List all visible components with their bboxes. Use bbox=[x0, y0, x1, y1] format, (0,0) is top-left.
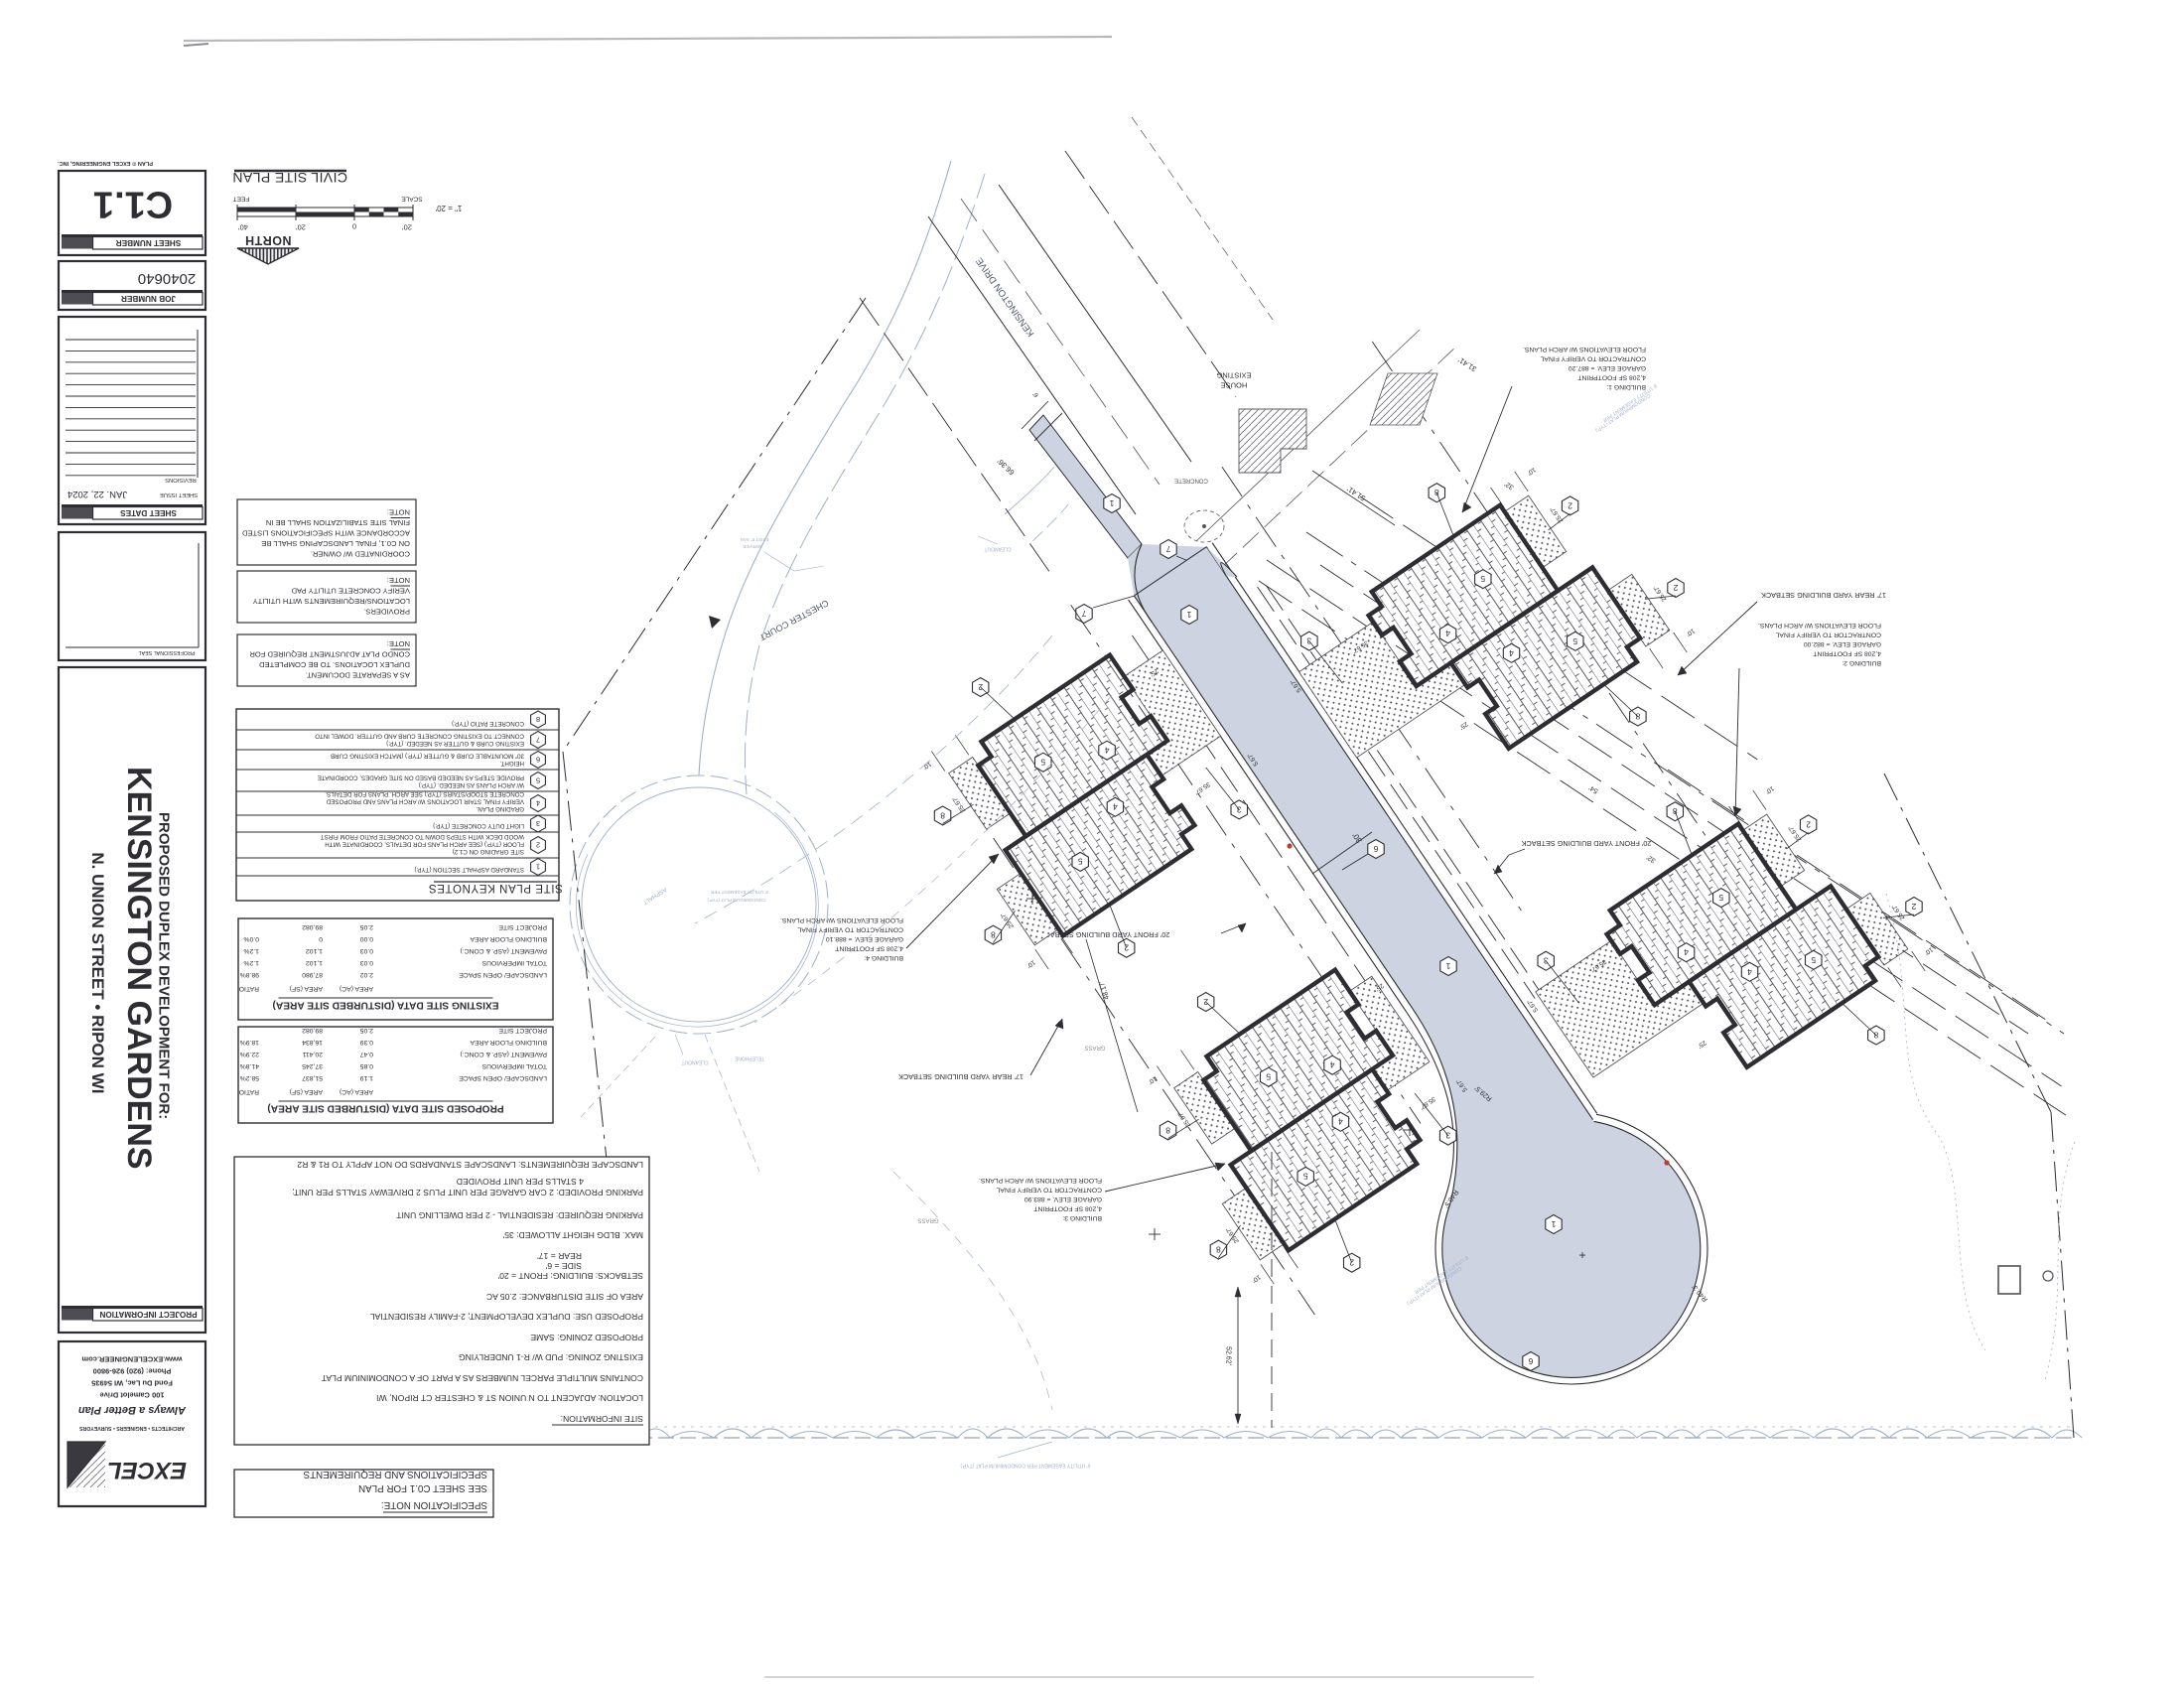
svg-text:GARAGE ELEV. = 882.00: GARAGE ELEV. = 882.00 bbox=[1804, 640, 1881, 647]
svg-text:89,082: 89,082 bbox=[302, 923, 323, 930]
svg-text:AS A SEPARATE DOCUMENT.: AS A SEPARATE DOCUMENT. bbox=[306, 671, 410, 680]
svg-text:20' FRONT YARD BUILDING SETBAC: 20' FRONT YARD BUILDING SETBACK bbox=[1522, 839, 1652, 848]
svg-text:PARKING REQUIRED: RESIDENTIAL: PARKING REQUIRED: RESIDENTIAL - 2 PER DW… bbox=[395, 1210, 643, 1220]
svg-text:PLAN © EXCEL ENGINEERING, INC.: PLAN © EXCEL ENGINEERING, INC. bbox=[58, 160, 153, 167]
svg-text:REVISIONS: REVISIONS bbox=[165, 477, 197, 483]
svg-text:2.02: 2.02 bbox=[360, 971, 373, 978]
svg-text:BUILDING 4:: BUILDING 4: bbox=[864, 954, 903, 961]
svg-text:5: 5 bbox=[1718, 893, 1723, 903]
svg-text:6: 6 bbox=[1373, 844, 1378, 854]
svg-text:0.47: 0.47 bbox=[360, 1051, 373, 1057]
svg-text:8: 8 bbox=[991, 929, 996, 939]
svg-text:22.9%: 22.9% bbox=[240, 1051, 259, 1057]
svg-text:1: 1 bbox=[1445, 961, 1450, 971]
svg-text:4 STALLS PER UNIT PROVIDED: 4 STALLS PER UNIT PROVIDED bbox=[457, 1177, 584, 1187]
svg-text:AREA (AC): AREA (AC) bbox=[340, 1088, 373, 1095]
svg-text:CONTRACTOR TO VERIFY FINAL: CONTRACTOR TO VERIFY FINAL bbox=[1775, 632, 1881, 638]
svg-text:4,208 SF FOOTPRINT: 4,208 SF FOOTPRINT bbox=[1577, 374, 1646, 381]
svg-text:4,208 SF FOOTPRINT: 4,208 SF FOOTPRINT bbox=[1033, 1205, 1102, 1212]
svg-text:30" MOUNTABLE CURB & GUTTER (T: 30" MOUNTABLE CURB & GUTTER (TYP.) (MATC… bbox=[331, 753, 524, 760]
svg-text:BUILDING FLOOR AREA: BUILDING FLOOR AREA bbox=[470, 1039, 547, 1046]
svg-text:VERIFY CONCRETE UTILITY PAD: VERIFY CONCRETE UTILITY PAD bbox=[291, 587, 410, 596]
svg-text:Always a Better Plan: Always a Better Plan bbox=[78, 1404, 187, 1416]
svg-text:100 Camelot Drive: 100 Camelot Drive bbox=[99, 1391, 164, 1400]
svg-text:SERVICE: SERVICE bbox=[743, 544, 762, 549]
svg-text:CONDOMINIUM PLAT (TYP.): CONDOMINIUM PLAT (TYP.) bbox=[707, 898, 766, 903]
svg-text:AREA (AC): AREA (AC) bbox=[340, 985, 373, 992]
svg-text:FLOOR ELEVATIONS W/ ARCH PLANS: FLOOR ELEVATIONS W/ ARCH PLANS. bbox=[1758, 622, 1881, 629]
svg-text:JAN. 22, 2024: JAN. 22, 2024 bbox=[68, 489, 127, 499]
svg-text:0.03: 0.03 bbox=[360, 947, 373, 954]
svg-text:COORDINATED W/ OWNER.: COORDINATED W/ OWNER. bbox=[311, 550, 410, 559]
svg-text:W/ ARCH PLANS AS NEEDED. (TYP.: W/ ARCH PLANS AS NEEDED. (TYP.) bbox=[419, 781, 524, 788]
svg-text:FLOOR ELEVATIONS W/ ARCH PLANS: FLOOR ELEVATIONS W/ ARCH PLANS. bbox=[979, 1177, 1102, 1184]
svg-text:0: 0 bbox=[319, 935, 323, 942]
svg-text:FEET: FEET bbox=[233, 195, 250, 202]
svg-text:PROJECT SITE: PROJECT SITE bbox=[498, 923, 547, 930]
svg-text:0.85: 0.85 bbox=[360, 1062, 373, 1069]
svg-text:18.9%: 18.9% bbox=[240, 1039, 259, 1046]
svg-text:17' REAR YARD BUILDING SETBACK: 17' REAR YARD BUILDING SETBACK bbox=[898, 1072, 1024, 1081]
svg-text:CLEANOUT: CLEANOUT bbox=[984, 545, 1011, 551]
svg-text:1.19: 1.19 bbox=[360, 1074, 373, 1081]
svg-text:1: 1 bbox=[1551, 1219, 1556, 1229]
svg-text:16,834: 16,834 bbox=[302, 1039, 323, 1046]
svg-text:4: 4 bbox=[1445, 629, 1450, 638]
svg-text:PARKING PROVIDED: 2 CAR GARAGE: PARKING PROVIDED: 2 CAR GARAGE PER UNIT … bbox=[292, 1188, 643, 1197]
svg-text:EXISTING: EXISTING bbox=[1216, 371, 1251, 380]
svg-text:FLOOR ELEVATIONS W/ ARCH PLANS: FLOOR ELEVATIONS W/ ARCH PLANS. bbox=[780, 916, 903, 923]
svg-text:CONNECT TO EXISTING CONCRETE C: CONNECT TO EXISTING CONCRETE CURB AND GU… bbox=[315, 733, 524, 740]
svg-text:4: 4 bbox=[1104, 745, 1109, 755]
svg-text:CONTRACTOR TO VERIFY FINAL: CONTRACTOR TO VERIFY FINAL bbox=[1540, 355, 1646, 362]
svg-text:5: 5 bbox=[1040, 757, 1045, 767]
svg-text:N. UNION STREET • RIPON WI: N. UNION STREET • RIPON WI bbox=[88, 852, 107, 1093]
svg-text:8: 8 bbox=[940, 810, 945, 820]
svg-text:HOUSE: HOUSE bbox=[1221, 381, 1248, 390]
svg-text:DUPLEX LOCATIONS. TO BE COMPL: DUPLEX LOCATIONS. TO BE COMPLETED bbox=[259, 660, 410, 669]
svg-text:17' REAR YARD BUILDING SETBACK: 17' REAR YARD BUILDING SETBACK bbox=[1761, 591, 1886, 600]
svg-text:1,102: 1,102 bbox=[306, 959, 323, 966]
svg-text:CONCRETE STOOP/STAIRS (TYP.) S: CONCRETE STOOP/STAIRS (TYP.) SEE ARCH. P… bbox=[325, 790, 524, 797]
svg-text:4: 4 bbox=[536, 799, 540, 808]
svg-text:PROPOSED USE: DUPLEX DEVELOPME: PROPOSED USE: DUPLEX DEVELOPMENT; 2-FAMI… bbox=[370, 1312, 643, 1322]
svg-text:Fond Du Lac, WI 54935: Fond Du Lac, WI 54935 bbox=[91, 1379, 173, 1388]
svg-text:37,245: 37,245 bbox=[302, 1062, 323, 1069]
svg-text:PAVEMENT (ASP. & CONC.): PAVEMENT (ASP. & CONC.) bbox=[461, 947, 548, 954]
svg-text:87,980: 87,980 bbox=[302, 971, 323, 978]
svg-text:0: 0 bbox=[352, 222, 356, 231]
svg-text:4: 4 bbox=[1113, 802, 1118, 812]
svg-text:4,208 SF FOOTPRINT: 4,208 SF FOOTPRINT bbox=[835, 945, 903, 952]
svg-text:SCALE: SCALE bbox=[401, 195, 423, 202]
svg-text:5: 5 bbox=[1078, 857, 1083, 867]
svg-text:8: 8 bbox=[1165, 1125, 1170, 1135]
svg-text:FLOOR ELEVATIONS W/ ARCH PLANS: FLOOR ELEVATIONS W/ ARCH PLANS. bbox=[1523, 346, 1646, 352]
svg-text:LANDSCAPE/ OPEN SPACE: LANDSCAPE/ OPEN SPACE bbox=[459, 971, 547, 978]
svg-text:BUILDING 2:: BUILDING 2: bbox=[1842, 659, 1881, 666]
svg-text:2: 2 bbox=[978, 682, 983, 692]
svg-text:7: 7 bbox=[1081, 609, 1086, 619]
svg-text:PROVIDERS.: PROVIDERS. bbox=[363, 608, 410, 617]
svg-text:52.62': 52.62' bbox=[1225, 1346, 1232, 1365]
svg-text:5: 5 bbox=[1266, 1072, 1271, 1082]
svg-text:EXISTING CURB & GUTTER AS NEED: EXISTING CURB & GUTTER AS NEEDED. (TYP.) bbox=[386, 740, 524, 747]
svg-text:0.03: 0.03 bbox=[360, 959, 373, 966]
svg-text:20,411: 20,411 bbox=[302, 1051, 323, 1057]
svg-text:TOTAL IMPERVIOUS: TOTAL IMPERVIOUS bbox=[481, 1062, 547, 1069]
svg-text:NOTE:: NOTE: bbox=[387, 508, 410, 517]
svg-text:GARAGE ELEV. = 887.20: GARAGE ELEV. = 887.20 bbox=[1569, 364, 1646, 371]
svg-text:PROFESSIONAL SEAL: PROFESSIONAL SEAL bbox=[138, 649, 195, 655]
svg-text:SHEET ISSUE: SHEET ISSUE bbox=[160, 492, 198, 497]
svg-text:+: + bbox=[1578, 1248, 1585, 1262]
svg-text:4,208 SF FOOTPRINT: 4,208 SF FOOTPRINT bbox=[1813, 650, 1881, 657]
svg-text:SITE INFORMATION:: SITE INFORMATION: bbox=[561, 1414, 643, 1424]
svg-text:2: 2 bbox=[1203, 997, 1208, 1007]
svg-text:2040640: 2040640 bbox=[138, 270, 196, 287]
svg-text:SITE GRADING ON C1.2): SITE GRADING ON C1.2) bbox=[453, 848, 524, 855]
svg-text:BUILDING FLOOR AREA: BUILDING FLOOR AREA bbox=[470, 935, 547, 942]
svg-text:EXISTING SITE DATA (DISTURBED: EXISTING SITE DATA (DISTURBED SITE AREA) bbox=[272, 1000, 498, 1011]
svg-text:1.2%: 1.2% bbox=[244, 947, 260, 954]
svg-text:CONTRACTOR TO VERIFY FINAL: CONTRACTOR TO VERIFY FINAL bbox=[797, 926, 903, 933]
svg-text:CONTRACTOR TO VERIFY FINAL: CONTRACTOR TO VERIFY FINAL bbox=[996, 1187, 1102, 1194]
svg-text:JOB NUMBER: JOB NUMBER bbox=[121, 294, 176, 303]
svg-text:2.05: 2.05 bbox=[360, 1027, 373, 1034]
svg-text:5: 5 bbox=[1303, 1172, 1308, 1182]
svg-text:CONCRETE PATIO (TYP.): CONCRETE PATIO (TYP.) bbox=[452, 720, 524, 727]
svg-text:4: 4 bbox=[1329, 1060, 1334, 1070]
svg-text:FINAL SITE STABILIZATION SHALL: FINAL SITE STABILIZATION SHALL BE IN bbox=[266, 518, 410, 527]
svg-text:HEIGHT.: HEIGHT. bbox=[499, 760, 524, 767]
svg-text:98.8%: 98.8% bbox=[240, 971, 259, 978]
svg-text:41.8%: 41.8% bbox=[240, 1062, 259, 1069]
svg-text:6: 6 bbox=[1528, 1356, 1533, 1366]
svg-text:GARAGE ELEV. = 888.10: GARAGE ELEV. = 888.10 bbox=[826, 935, 903, 942]
svg-text:NORTH: NORTH bbox=[245, 233, 292, 247]
svg-text:1: 1 bbox=[1109, 498, 1114, 508]
svg-text:SPECIFICATIONS AND REQUIREMENT: SPECIFICATIONS AND REQUIREMENTS bbox=[303, 1469, 487, 1479]
svg-text:PROJECT INFORMATION: PROJECT INFORMATION bbox=[99, 1310, 197, 1319]
svg-text:40': 40' bbox=[238, 223, 248, 232]
svg-text:5: 5 bbox=[536, 776, 540, 785]
svg-text:Phone: (920) 926-9800: Phone: (920) 926-9800 bbox=[93, 1367, 172, 1376]
svg-text:GRADING PLAN.: GRADING PLAN. bbox=[476, 805, 524, 812]
svg-text:2: 2 bbox=[1673, 583, 1678, 593]
svg-text:1: 1 bbox=[1186, 610, 1191, 620]
svg-text:SEE SHEET C0.1 FOR PLAN: SEE SHEET C0.1 FOR PLAN bbox=[358, 1482, 487, 1493]
svg-text:LANDSCAPE REQUIREMENTS: LANDSC: LANDSCAPE REQUIREMENTS: LANDSCAPE STANDA… bbox=[297, 1160, 643, 1170]
svg-text:SETBACKS: BUILDING: FRONT = 20: SETBACKS: BUILDING: FRONT = 20' bbox=[497, 1271, 643, 1281]
svg-text:EXISTING ZONING: PUD W/ R-1 UN: EXISTING ZONING: PUD W/ R-1 UNDERLYING bbox=[459, 1352, 643, 1362]
svg-text:7: 7 bbox=[1165, 544, 1170, 554]
svg-text:TELEPHONE: TELEPHONE bbox=[734, 1055, 764, 1060]
svg-text:GRASS: GRASS bbox=[1084, 1045, 1105, 1051]
svg-text:SPECIFICATION NOTE:: SPECIFICATION NOTE: bbox=[381, 1499, 487, 1510]
svg-text:C1.1: C1.1 bbox=[93, 184, 173, 225]
svg-text:CLEANOUT: CLEANOUT bbox=[681, 1058, 708, 1064]
svg-text:CONCRETE: CONCRETE bbox=[1174, 478, 1208, 484]
svg-text:1,102: 1,102 bbox=[306, 947, 323, 954]
svg-text:PROJECT SITE: PROJECT SITE bbox=[498, 1027, 547, 1034]
svg-text:PROPOSED ZONING: SAME: PROPOSED ZONING: SAME bbox=[530, 1333, 643, 1342]
svg-text:5: 5 bbox=[1572, 636, 1577, 646]
svg-text:8: 8 bbox=[536, 715, 540, 724]
svg-text:5: 5 bbox=[1480, 574, 1485, 584]
svg-text:EXCEL: EXCEL bbox=[107, 1457, 187, 1483]
svg-text:GARAGE ELEV. = 883.90: GARAGE ELEV. = 883.90 bbox=[1024, 1196, 1102, 1202]
svg-text:89,082: 89,082 bbox=[302, 1027, 323, 1034]
svg-text:0.39: 0.39 bbox=[360, 1039, 373, 1046]
svg-text:2: 2 bbox=[1568, 500, 1572, 510]
svg-text:2: 2 bbox=[1806, 819, 1811, 829]
svg-text:EXIST 8″ SAN: EXIST 8″ SAN bbox=[741, 537, 769, 542]
svg-text:4: 4 bbox=[1684, 947, 1689, 957]
svg-text:6' UTILITY EASEMENT PER CONDOM: 6' UTILITY EASEMENT PER CONDOMINIUM PLAT… bbox=[960, 1462, 1090, 1468]
svg-text:20': 20' bbox=[402, 223, 412, 232]
svg-text:MAX. BLDG HEIGHT ALLOWED: 35': MAX. BLDG HEIGHT ALLOWED: 35' bbox=[502, 1230, 643, 1240]
svg-text:51,837: 51,837 bbox=[302, 1074, 323, 1081]
svg-text:PROPOSED SITE DATA (DISTURBED: PROPOSED SITE DATA (DISTURBED SITE AREA) bbox=[267, 1103, 503, 1114]
svg-text:LIGHT DUTY CONCRETE (TYP.): LIGHT DUTY CONCRETE (TYP.) bbox=[433, 822, 524, 829]
svg-text:LOCATION: ADJACENT TO N UNION: LOCATION: ADJACENT TO N UNION ST & CHEST… bbox=[376, 1393, 643, 1403]
svg-text:TOTAL IMPERVIOUS: TOTAL IMPERVIOUS bbox=[481, 959, 547, 966]
svg-text:CONTAINS MULTIPLE PARCEL NUMBE: CONTAINS MULTIPLE PARCEL NUMBERS AS A PA… bbox=[321, 1373, 643, 1383]
svg-text:2.05: 2.05 bbox=[360, 923, 373, 930]
svg-text:4: 4 bbox=[1509, 648, 1514, 658]
svg-text:SIDE = 6': SIDE = 6' bbox=[545, 1261, 582, 1271]
svg-text:0.00: 0.00 bbox=[360, 935, 373, 942]
svg-text:WOOD DECK WITH STEPS DOWN TO C: WOOD DECK WITH STEPS DOWN TO CONCRETE PA… bbox=[321, 833, 524, 840]
svg-text:RATIO: RATIO bbox=[239, 1088, 259, 1095]
svg-text:3: 3 bbox=[536, 819, 540, 828]
svg-text:BUILDING 3:: BUILDING 3: bbox=[1062, 1214, 1102, 1221]
svg-text:LANDSCAPE/ OPEN SPACE: LANDSCAPE/ OPEN SPACE bbox=[459, 1074, 547, 1081]
svg-text:ACCORDANCE WITH SPECIFICATIONS: ACCORDANCE WITH SPECIFICATIONS LISTED bbox=[241, 529, 410, 538]
svg-text:CONDO PLAT ADJUSTMENT REQUIRED: CONDO PLAT ADJUSTMENT REQUIRED FOR bbox=[249, 650, 410, 659]
svg-text:www.EXCELENGINEER.com: www.EXCELENGINEER.com bbox=[81, 1355, 183, 1364]
svg-text:LOCATIONS/REQUIREMENTS WITH UT: LOCATIONS/REQUIREMENTS WITH UTILITY bbox=[253, 597, 411, 606]
svg-text:CIVIL SITE PLAN: CIVIL SITE PLAN bbox=[232, 170, 347, 186]
svg-text:SITE PLAN KEYNOTES: SITE PLAN KEYNOTES bbox=[428, 882, 562, 894]
svg-text:KENSINGTON GARDENS: KENSINGTON GARDENS bbox=[120, 767, 158, 1170]
svg-text:PROVIDE STEPS AS NEEDED BASED: PROVIDE STEPS AS NEEDED BASED ON SITE GR… bbox=[318, 774, 524, 781]
svg-text:8: 8 bbox=[1216, 1244, 1221, 1254]
svg-text:6: 6 bbox=[536, 756, 540, 765]
svg-text:8' UTILITY EASEMENT PER: 8' UTILITY EASEMENT PER bbox=[710, 890, 767, 895]
svg-text:3: 3 bbox=[1544, 956, 1549, 966]
svg-text:STANDARD ASPHALT SECTION (TYP.: STANDARD ASPHALT SECTION (TYP.) bbox=[414, 866, 524, 873]
svg-text:GRASS: GRASS bbox=[917, 1217, 938, 1223]
svg-text:AREA (SF): AREA (SF) bbox=[290, 985, 323, 992]
svg-text:ON C0.1, FINAL LANDSCAPING SHA: ON C0.1, FINAL LANDSCAPING SHALL BE bbox=[261, 539, 410, 548]
svg-text:4: 4 bbox=[1338, 1117, 1343, 1127]
svg-text:1.2%: 1.2% bbox=[244, 959, 260, 966]
svg-text:PAVEMENT (ASP. & CONC.): PAVEMENT (ASP. & CONC.) bbox=[461, 1051, 548, 1057]
svg-text:0.0%: 0.0% bbox=[244, 935, 260, 942]
svg-text:AREA OF SITE DISTURBANCE: 2.05: AREA OF SITE DISTURBANCE: 2.05 AC bbox=[486, 1292, 643, 1302]
svg-text:58.2%: 58.2% bbox=[240, 1074, 259, 1081]
svg-text:ARCHITECTS • ENGINEERS • SURVE: ARCHITECTS • ENGINEERS • SURVEYORS bbox=[79, 1425, 185, 1431]
svg-text:VERIFY FINAL STAIR LOCATIONS W: VERIFY FINAL STAIR LOCATIONS W/ ARCH PLA… bbox=[326, 798, 524, 805]
svg-text:RATIO: RATIO bbox=[239, 985, 259, 992]
svg-text:FLOOR (TYP.) (SEE ARCH PLANS F: FLOOR (TYP.) (SEE ARCH PLANS FOR DETAILS… bbox=[325, 841, 524, 848]
svg-text:20': 20' bbox=[296, 223, 306, 232]
svg-text:4: 4 bbox=[1747, 967, 1752, 977]
svg-text:AREA (SF): AREA (SF) bbox=[290, 1088, 323, 1095]
svg-text:5: 5 bbox=[1811, 955, 1816, 965]
svg-text:NOTE:: NOTE: bbox=[387, 576, 410, 585]
svg-text:1" = 20': 1" = 20' bbox=[435, 204, 462, 212]
svg-text:3: 3 bbox=[1306, 636, 1311, 646]
svg-text:BUILDING 1:: BUILDING 1: bbox=[1606, 383, 1646, 390]
svg-text:2: 2 bbox=[536, 841, 540, 850]
svg-text:2: 2 bbox=[1911, 902, 1916, 912]
svg-text:NOTE:: NOTE: bbox=[387, 639, 410, 648]
svg-text:REAR = 17': REAR = 17' bbox=[537, 1251, 582, 1261]
svg-text:7: 7 bbox=[536, 736, 540, 745]
svg-text:SHEET NUMBER: SHEET NUMBER bbox=[116, 238, 182, 247]
svg-text:1: 1 bbox=[536, 863, 540, 872]
svg-text:SHEET DATES: SHEET DATES bbox=[120, 508, 177, 517]
